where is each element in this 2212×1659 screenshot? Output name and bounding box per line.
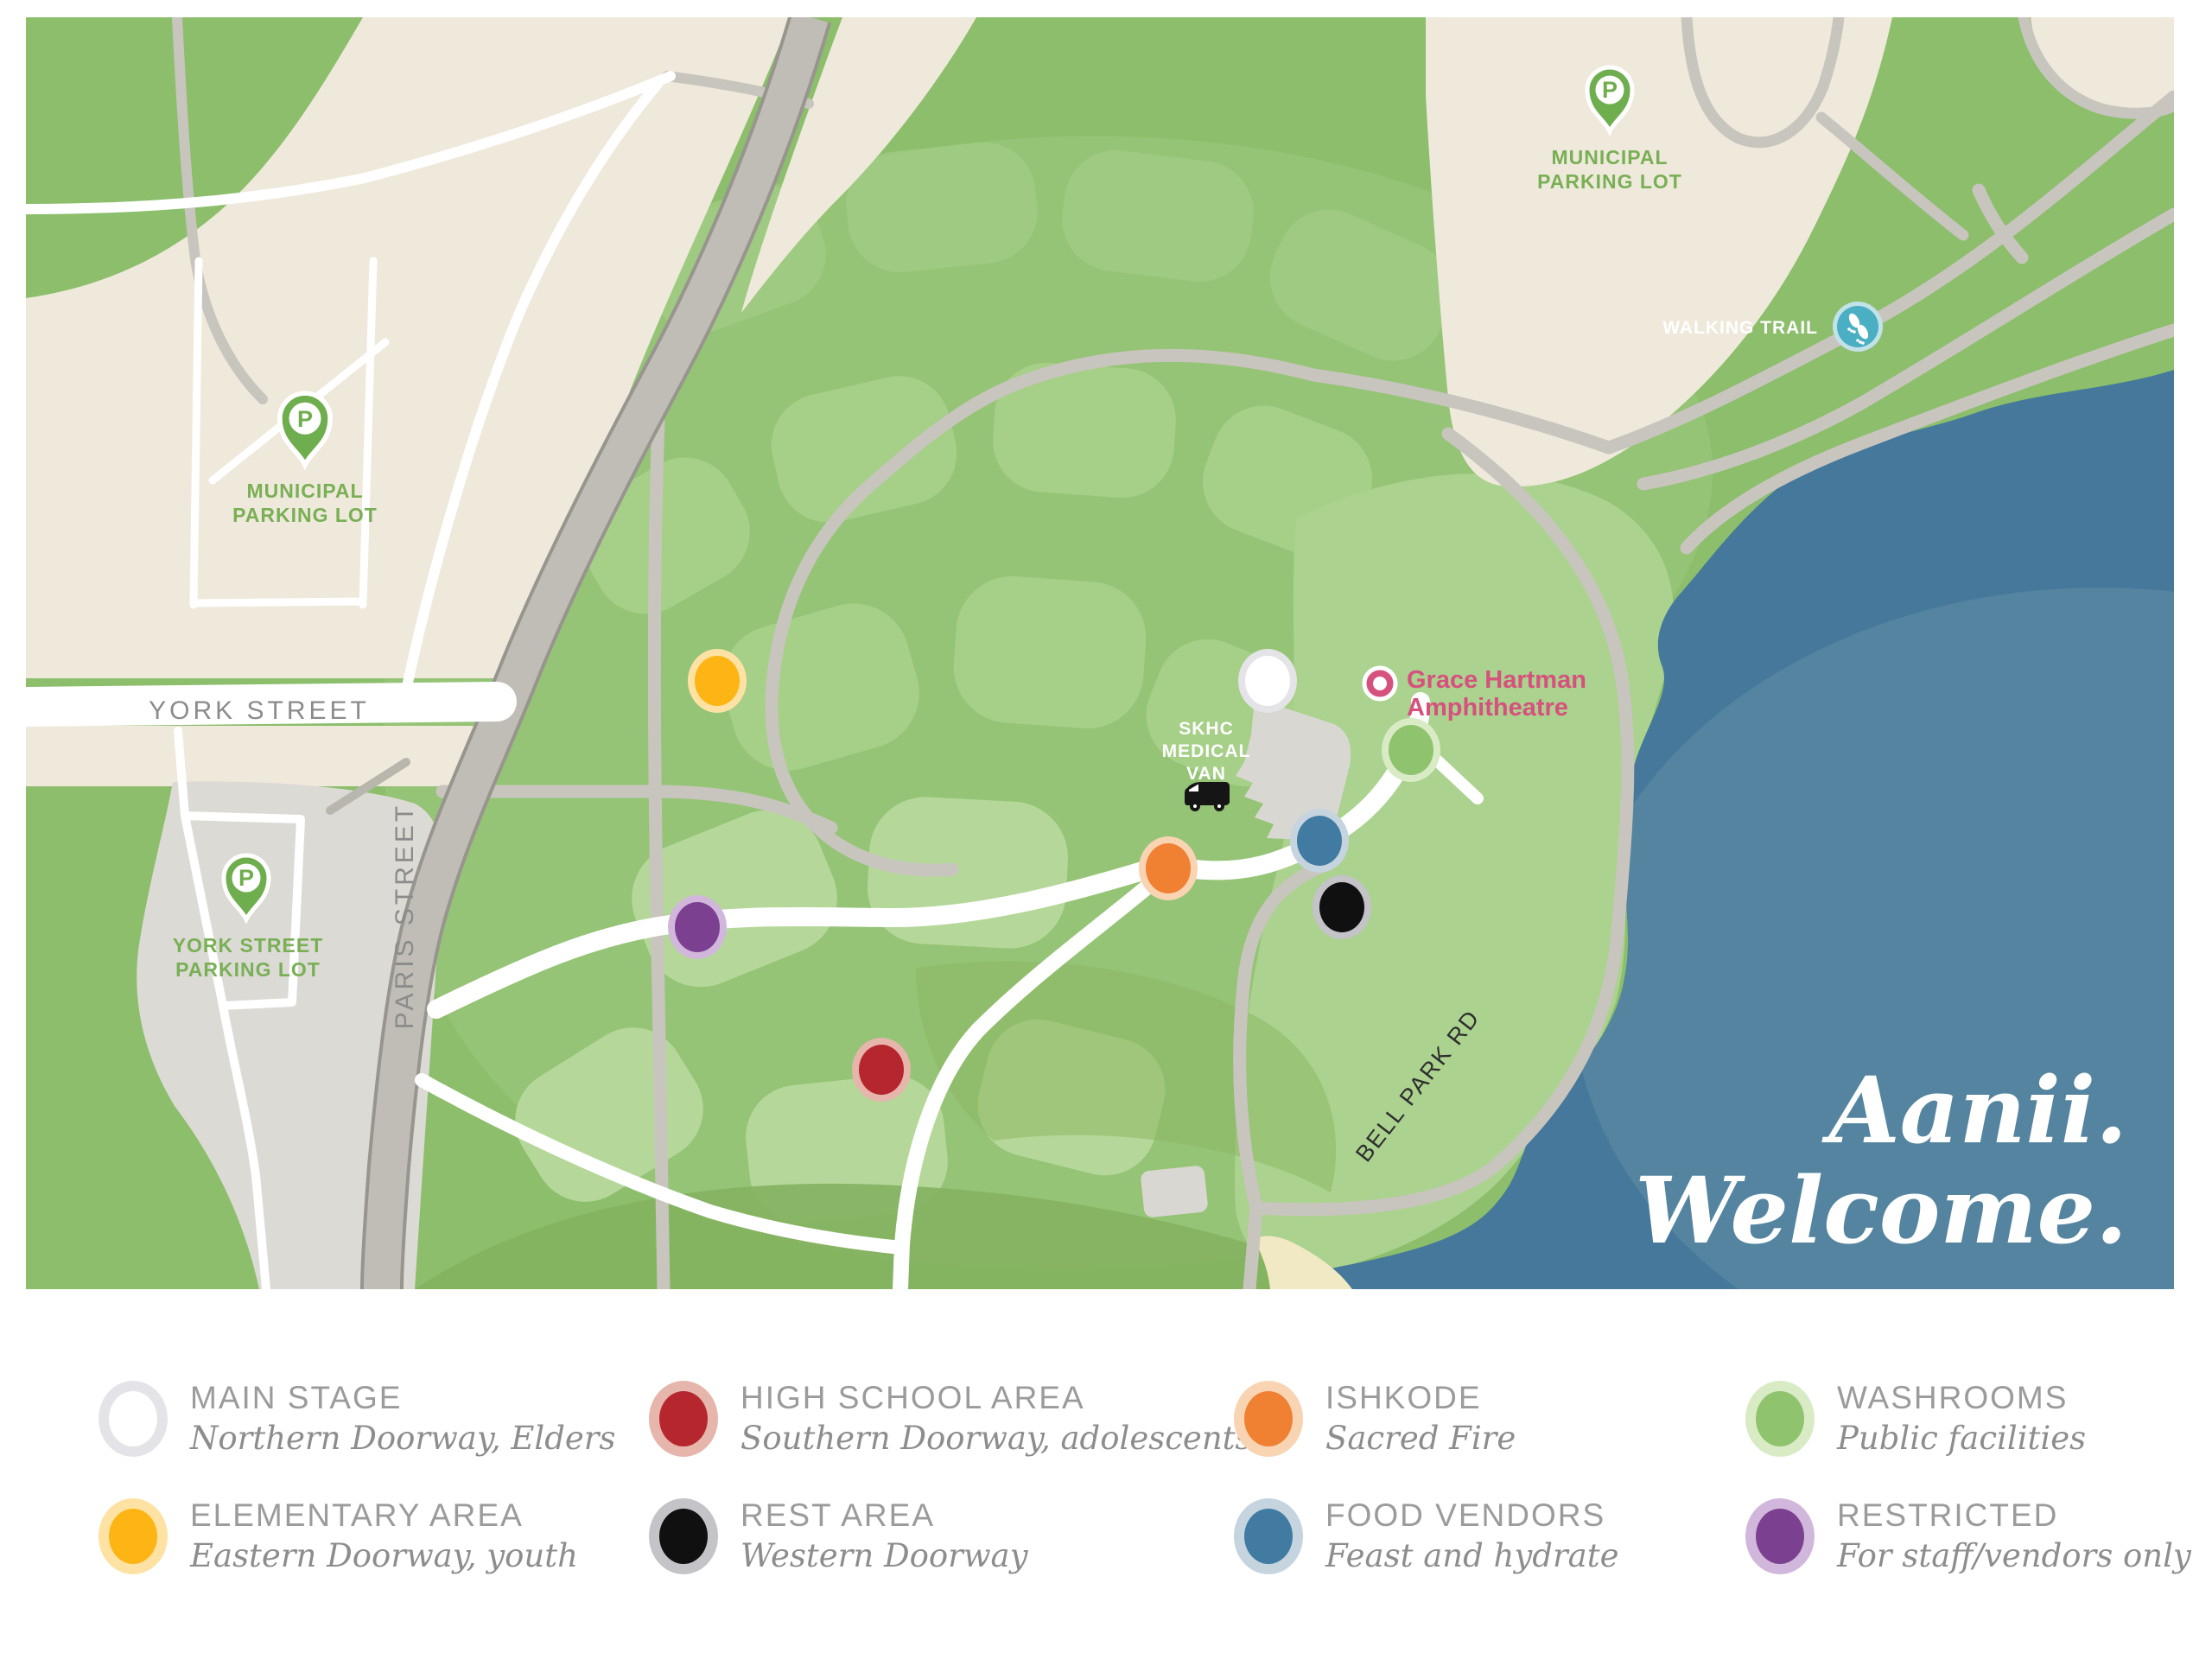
- legend-item-ishkode: ISHKODE Sacred Fire: [1227, 1376, 1516, 1462]
- legend-item-washrooms: WASHROOMS Public facilities: [1738, 1376, 2086, 1462]
- municipal-parking-west-label1: MUNICIPAL: [246, 480, 363, 502]
- legend-title: WASHROOMS: [1837, 1378, 2086, 1418]
- legend-title: MAIN STAGE: [190, 1378, 615, 1418]
- medical-van-label-line3: VAN: [1186, 764, 1226, 784]
- restricted-marker: [668, 895, 727, 959]
- paris-street-label: PARIS STREET: [391, 803, 419, 1029]
- legend-item-rest-area: REST AREA Western Doorway: [642, 1493, 1027, 1580]
- legend-title: FOOD VENDORS: [1325, 1496, 1619, 1535]
- municipal-parking-north-label2: PARKING LOT: [1537, 170, 1682, 193]
- washrooms-swatch: [1738, 1377, 1821, 1460]
- elementary-area-marker: [688, 649, 747, 713]
- walking-trail-label: WALKING TRAIL: [1662, 318, 1818, 338]
- york-street-label: YORK STREET: [149, 696, 370, 725]
- legend-subtitle: Feast and hydrate: [1325, 1535, 1619, 1577]
- legend-subtitle: Western Doorway: [741, 1535, 1027, 1577]
- svg-text:P: P: [297, 406, 313, 432]
- welcome-title-line2: Welcome.: [1635, 1156, 2127, 1264]
- high-school-area-marker: [852, 1038, 911, 1102]
- amphitheatre-label-line2: Amphitheatre: [1407, 694, 1568, 721]
- svg-text:P: P: [238, 865, 254, 891]
- legend-subtitle: Southern Doorway, adolescents: [741, 1418, 1252, 1459]
- legend-title: REST AREA: [741, 1496, 1027, 1535]
- elementary-swatch: [92, 1495, 175, 1578]
- walking-trail-icon: [1833, 302, 1883, 352]
- welcome-title-line1: Aanii.: [1821, 1056, 2127, 1164]
- rest-area-swatch: [642, 1495, 725, 1578]
- legend-item-high-school-area: HIGH SCHOOL AREA Southern Doorway, adole…: [642, 1376, 1252, 1462]
- park-map-page: { "map": { "labels": { "york_street": "Y…: [0, 0, 2212, 1659]
- legend-item-elementary-area: ELEMENTARY AREA Eastern Doorway, youth: [92, 1493, 578, 1580]
- food-vendors-marker: [1290, 809, 1349, 873]
- main-stage-marker: [1238, 649, 1297, 713]
- legend-title: ELEMENTARY AREA: [190, 1496, 578, 1535]
- park-building: [1140, 1165, 1208, 1217]
- ishkode-marker: [1139, 836, 1198, 900]
- legend-subtitle: For staff/vendors only: [1837, 1535, 2191, 1577]
- medical-van-label-line1: SKHC: [1179, 719, 1234, 739]
- legend-subtitle: Eastern Doorway, youth: [190, 1535, 578, 1577]
- svg-text:P: P: [1602, 77, 1618, 103]
- map-canvas: YORK STREET PARIS STREET BELL PARK RD: [26, 17, 2212, 1400]
- legend-subtitle: Sacred Fire: [1325, 1418, 1516, 1459]
- legend-item-food-vendors: FOOD VENDORS Feast and hydrate: [1227, 1493, 1619, 1580]
- medical-van-label-line2: MEDICAL: [1162, 741, 1251, 761]
- legend-title: ISHKODE: [1325, 1378, 1516, 1418]
- york-lot-label2: PARKING LOT: [175, 958, 321, 981]
- legend-subtitle: Northern Doorway, Elders: [190, 1418, 615, 1459]
- legend-subtitle: Public facilities: [1837, 1418, 2086, 1459]
- york-lot-label1: YORK STREET: [173, 934, 324, 957]
- municipal-parking-west-label2: PARKING LOT: [232, 504, 378, 526]
- rest-area-marker: [1313, 875, 1371, 939]
- ishkode-swatch: [1227, 1377, 1310, 1460]
- restricted-swatch: [1738, 1495, 1821, 1578]
- washrooms-marker: [1382, 718, 1440, 782]
- legend-title: HIGH SCHOOL AREA: [741, 1378, 1252, 1418]
- municipal-parking-north-label1: MUNICIPAL: [1551, 146, 1668, 168]
- main-stage-swatch: [92, 1377, 175, 1460]
- high-school-swatch: [642, 1377, 725, 1460]
- amphitheatre-point-center: [1373, 677, 1387, 690]
- legend-title: RESTRICTED: [1837, 1496, 2191, 1535]
- food-vendors-swatch: [1227, 1495, 1310, 1578]
- amphitheatre-label-line1: Grace Hartman: [1407, 666, 1586, 694]
- legend-item-main-stage: MAIN STAGE Northern Doorway, Elders: [92, 1376, 615, 1462]
- legend-item-restricted: RESTRICTED For staff/vendors only: [1738, 1493, 2191, 1580]
